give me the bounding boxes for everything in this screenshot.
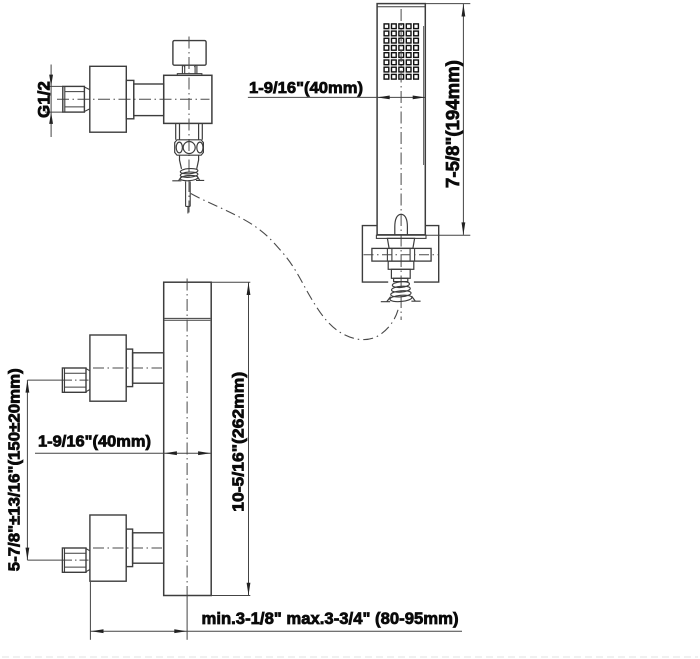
svg-text:5-7/8"±13/16"(150±20mm): 5-7/8"±13/16"(150±20mm) <box>6 368 23 571</box>
svg-text:G1/2: G1/2 <box>35 81 54 118</box>
svg-text:10-5/16"(262mm): 10-5/16"(262mm) <box>230 372 247 512</box>
svg-text:1-9/16"(40mm): 1-9/16"(40mm) <box>38 433 151 450</box>
svg-text:7-5/8"(194mm): 7-5/8"(194mm) <box>442 60 463 188</box>
svg-text:min.3-1/8" max.3-3/4" (80-95mm: min.3-1/8" max.3-3/4" (80-95mm) <box>202 610 459 628</box>
svg-text:1-9/16"(40mm): 1-9/16"(40mm) <box>249 80 363 97</box>
